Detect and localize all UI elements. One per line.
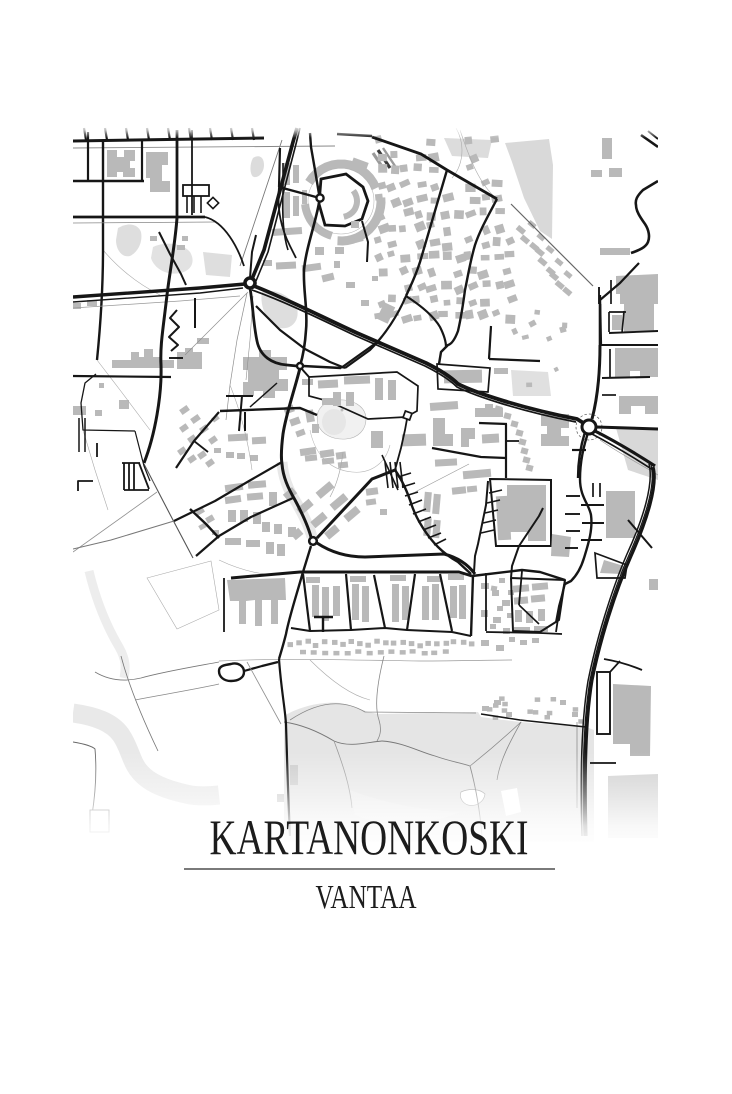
svg-text:VANTAA: VANTAA: [316, 879, 417, 916]
svg-text:KARTANONKOSKI: KARTANONKOSKI: [210, 809, 529, 865]
